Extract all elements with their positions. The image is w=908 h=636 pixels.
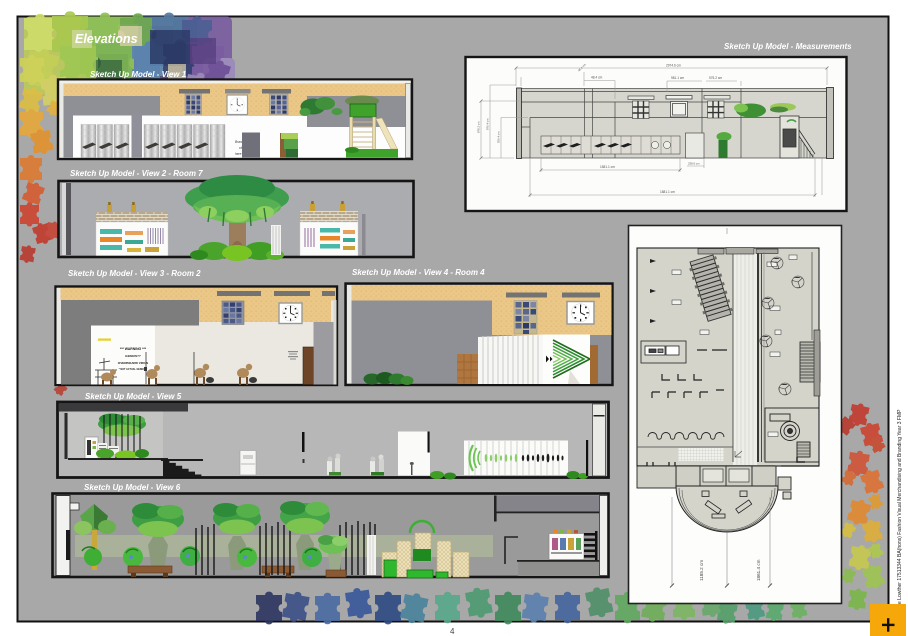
svg-text:* NOT ACTUAL GENIUS *: * NOT ACTUAL GENIUS *: [119, 368, 147, 371]
svg-text:1185.2 cm: 1185.2 cm: [699, 560, 704, 581]
svg-text:OVERBOARD VIRUS: OVERBOARD VIRUS: [118, 361, 148, 365]
svg-text:Elevations: Elevations: [75, 32, 138, 46]
svg-text:Sketch Up Model - View 1: Sketch Up Model - View 1: [90, 70, 187, 79]
svg-text:Sketch Up Model - Measurements: Sketch Up Model - Measurements: [724, 42, 852, 51]
svg-text:975.2 cm: 975.2 cm: [709, 76, 722, 80]
svg-text:556.4 cm: 556.4 cm: [497, 131, 501, 143]
svg-text:Sketch Up Model - View 3 - Roo: Sketch Up Model - View 3 - Room 2: [68, 269, 201, 278]
svg-text:878.2 cm: 878.2 cm: [477, 121, 481, 133]
svg-text:1881.1 cm: 1881.1 cm: [660, 190, 675, 194]
svg-text:2974.6 cm: 2974.6 cm: [666, 64, 681, 68]
svg-text:981.1 cm: 981.1 cm: [671, 76, 684, 80]
svg-text:4: 4: [450, 627, 455, 636]
svg-text:GENIUS??: GENIUS??: [125, 354, 141, 358]
svg-text:here: here: [235, 152, 242, 156]
svg-text:*** WARNING ***: *** WARNING ***: [120, 347, 147, 351]
svg-text:e Lowther 17513344 BA(hons) F: e Lowther 17513344 BA(hons) Fashion Visu…: [897, 409, 903, 604]
svg-text:Sketch Up Model - View 2 - Roo: Sketch Up Model - View 2 - Room 7: [70, 169, 203, 178]
svg-text:Sketch Up Model - View 4 - Roo: Sketch Up Model - View 4 - Room 4: [352, 268, 485, 277]
svg-text:48.4 cm: 48.4 cm: [591, 76, 603, 80]
svg-text:1861.4 cm: 1861.4 cm: [756, 559, 761, 581]
svg-text:976.4 cm: 976.4 cm: [486, 118, 490, 130]
svg-text:Sketch Up Model - View 5: Sketch Up Model - View 5: [85, 392, 182, 401]
svg-text:1581.1 cm: 1581.1 cm: [600, 165, 615, 169]
svg-text:238.6 cm: 238.6 cm: [688, 162, 700, 166]
svg-text:Sketch Up Model - View 6: Sketch Up Model - View 6: [84, 483, 181, 492]
